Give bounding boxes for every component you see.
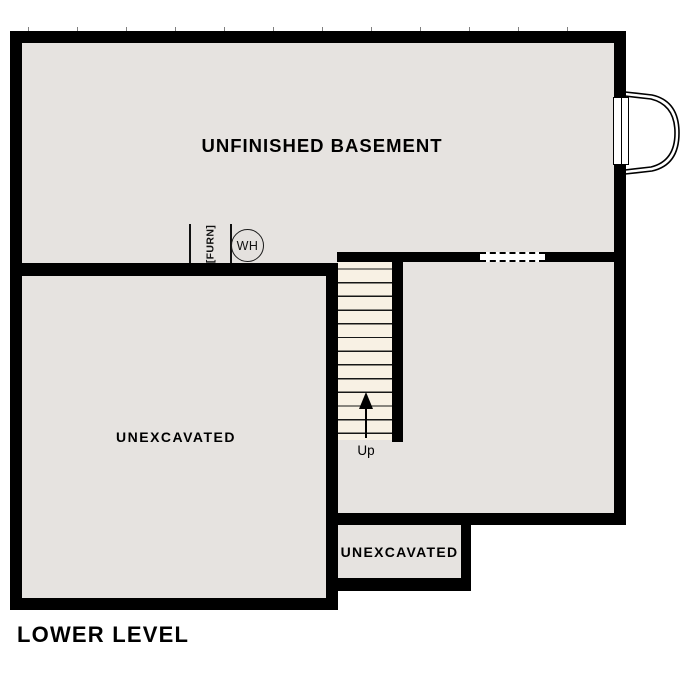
wall-left xyxy=(10,31,22,610)
wall-stair-right xyxy=(392,252,403,442)
plan-title: LOWER LEVEL xyxy=(17,622,189,648)
bay-window-frame-divider xyxy=(621,98,623,164)
wall-rightroom-bottom xyxy=(338,513,626,525)
floor-plan: [FURN] WH UNFINISHED BASEMENT UNEXCAVATE… xyxy=(0,0,687,687)
water-heater-label: WH xyxy=(237,239,259,253)
dashed-opening xyxy=(480,252,545,262)
furnace-symbol: [FURN] xyxy=(189,224,224,263)
wall-top xyxy=(10,31,626,43)
up-arrow-head-icon xyxy=(359,392,373,409)
basement-label: UNFINISHED BASEMENT xyxy=(172,136,472,156)
furnace-label: [FURN] xyxy=(204,224,216,263)
bay-window-frame xyxy=(613,97,629,165)
up-arrow-icon xyxy=(365,406,367,438)
wall-smallroom-bottom xyxy=(326,578,471,591)
unexcavated-small-label: UNEXCAVATED xyxy=(337,545,462,560)
stairs-up-label: Up xyxy=(345,443,387,458)
wall-leftroom-bottom xyxy=(10,598,338,610)
wall-middle-left xyxy=(10,263,337,276)
unexcavated-left-label: UNEXCAVATED xyxy=(76,430,276,445)
bow-window-icon xyxy=(624,86,684,180)
water-heater-symbol: WH xyxy=(231,229,264,262)
